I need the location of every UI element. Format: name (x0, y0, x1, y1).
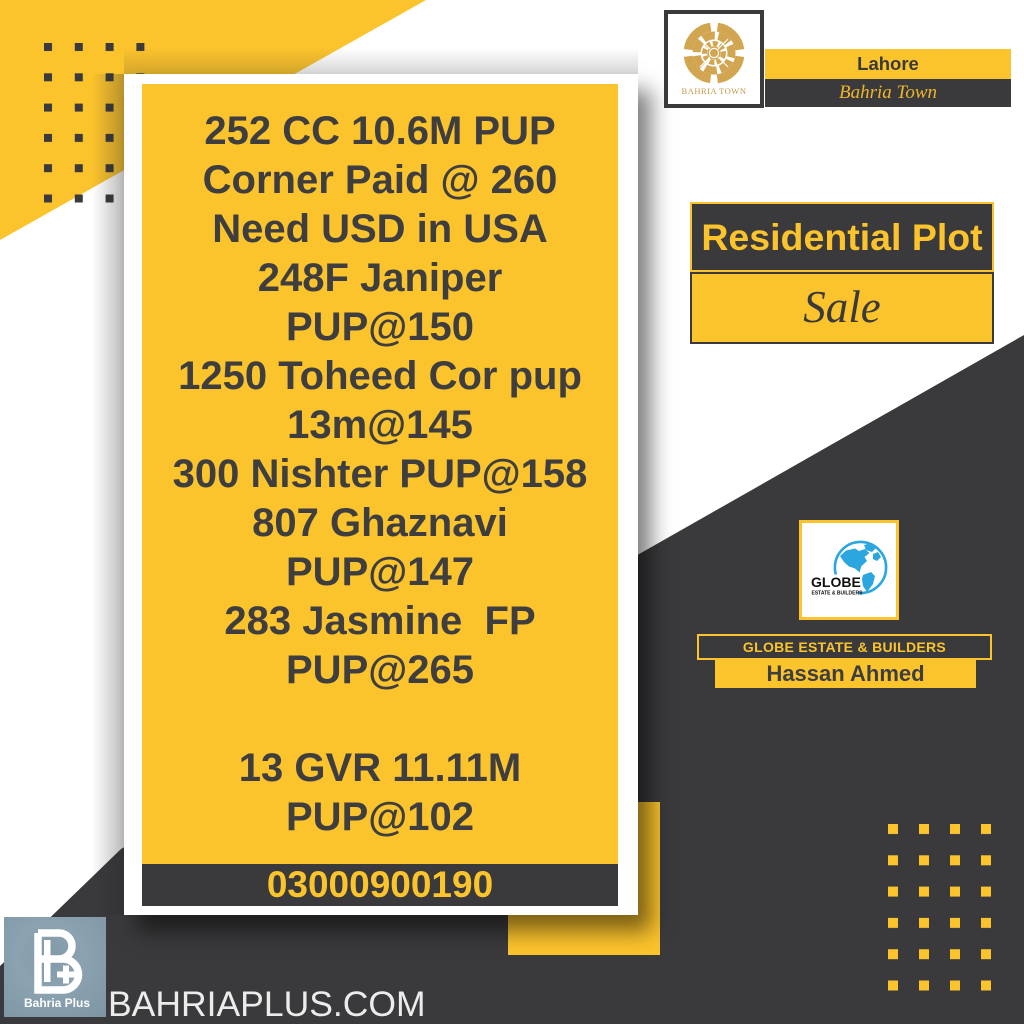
svg-text:GLOBE: GLOBE (811, 574, 861, 590)
svg-text:Bahria Plus: Bahria Plus (24, 996, 90, 1010)
svg-text:ESTATE & BUILDERS: ESTATE & BUILDERS (812, 591, 864, 597)
